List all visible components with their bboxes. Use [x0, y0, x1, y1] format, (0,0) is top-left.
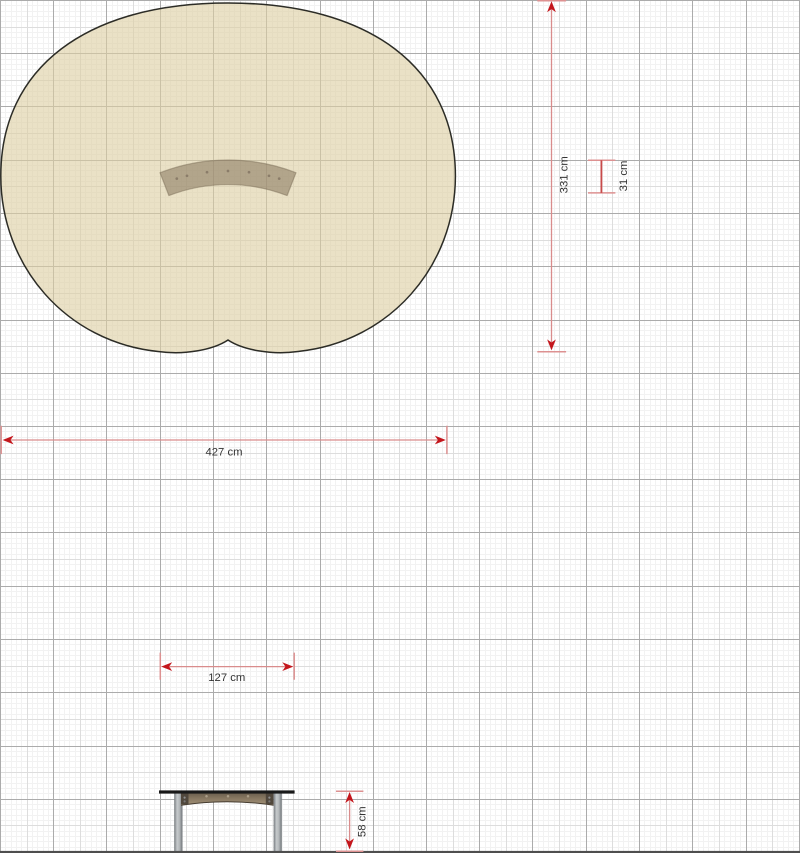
svg-text:31 cm: 31 cm — [618, 161, 630, 192]
svg-text:427 cm: 427 cm — [205, 447, 242, 459]
svg-text:58 cm: 58 cm — [356, 806, 368, 837]
svg-text:127 cm: 127 cm — [208, 672, 245, 684]
svg-text:331 cm: 331 cm — [559, 156, 571, 193]
